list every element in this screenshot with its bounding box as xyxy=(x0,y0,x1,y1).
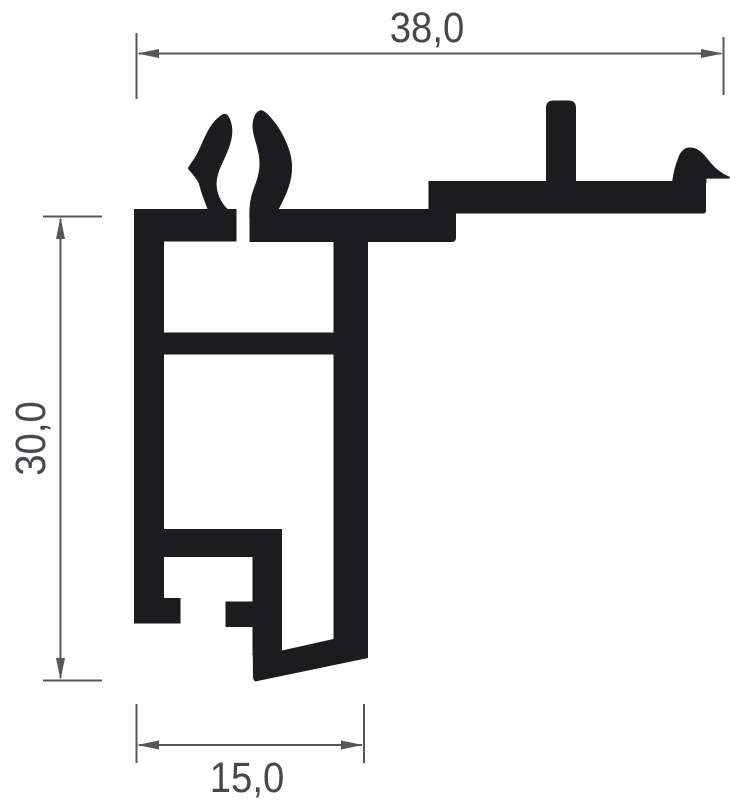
svg-text:30,0: 30,0 xyxy=(6,401,54,475)
svg-text:15,0: 15,0 xyxy=(210,753,284,800)
svg-text:38,0: 38,0 xyxy=(390,3,464,51)
